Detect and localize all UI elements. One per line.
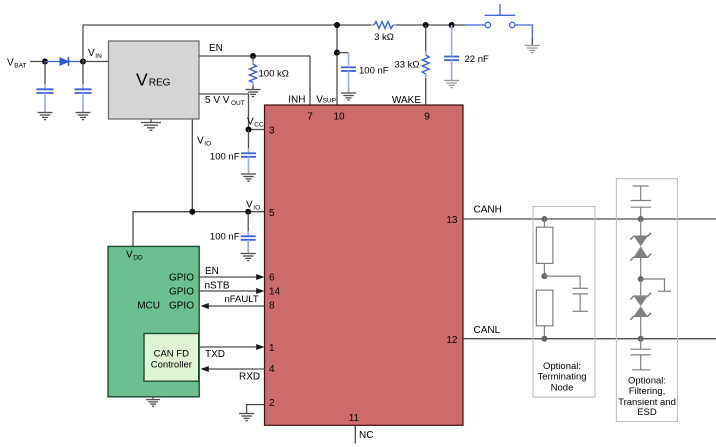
svg-text:8: 8 xyxy=(269,301,275,312)
svg-text:3 kΩ: 3 kΩ xyxy=(374,32,394,43)
svg-text:GPIO: GPIO xyxy=(169,301,194,312)
svg-text:SUP: SUP xyxy=(323,98,336,105)
svg-text:EN: EN xyxy=(209,43,223,54)
svg-text:IN: IN xyxy=(95,53,102,60)
svg-text:V: V xyxy=(7,58,14,69)
svg-text:CC: CC xyxy=(254,122,264,129)
svg-text:nSTB: nSTB xyxy=(205,281,230,292)
svg-text:V: V xyxy=(126,250,133,261)
svg-text:100 nF: 100 nF xyxy=(359,66,389,77)
svg-text:100 kΩ: 100 kΩ xyxy=(259,69,289,80)
svg-text:14: 14 xyxy=(269,287,281,298)
svg-text:5 V V: 5 V V xyxy=(205,95,230,106)
svg-text:IO: IO xyxy=(253,205,260,212)
svg-text:TXD: TXD xyxy=(205,349,225,360)
svg-text:1: 1 xyxy=(269,343,275,354)
svg-text:Filtering,: Filtering, xyxy=(629,386,665,397)
svg-text:CANL: CANL xyxy=(474,325,501,336)
svg-text:BAT: BAT xyxy=(14,63,26,70)
svg-text:Optional:: Optional: xyxy=(543,361,581,372)
svg-text:9: 9 xyxy=(424,112,430,123)
svg-text:NC: NC xyxy=(359,430,373,441)
svg-text:CAN FD: CAN FD xyxy=(154,349,190,360)
svg-text:4: 4 xyxy=(269,364,275,375)
svg-text:RXD: RXD xyxy=(239,372,260,383)
svg-text:Node: Node xyxy=(551,382,574,393)
svg-text:10: 10 xyxy=(333,112,345,123)
svg-text:11: 11 xyxy=(349,413,360,424)
svg-text:12: 12 xyxy=(446,335,458,346)
svg-text:Controller: Controller xyxy=(151,359,192,370)
svg-text:REG: REG xyxy=(149,78,171,89)
svg-text:3: 3 xyxy=(269,126,275,137)
svg-text:V: V xyxy=(88,48,95,59)
svg-text:7: 7 xyxy=(307,112,313,123)
svg-text:ESD: ESD xyxy=(637,407,657,418)
svg-text:5: 5 xyxy=(269,208,275,219)
svg-text:nFAULT: nFAULT xyxy=(225,294,259,305)
svg-text:EN: EN xyxy=(205,266,219,277)
svg-text:V: V xyxy=(247,117,254,128)
svg-text:GPIO: GPIO xyxy=(169,273,194,284)
svg-text:CANH: CANH xyxy=(474,205,502,216)
svg-text:100 nF: 100 nF xyxy=(210,232,240,243)
svg-text:DD: DD xyxy=(133,255,143,262)
svg-text:2: 2 xyxy=(269,398,275,409)
svg-text:MCU: MCU xyxy=(137,301,160,312)
svg-text:100 nF: 100 nF xyxy=(210,152,240,163)
svg-text:IO: IO xyxy=(204,141,211,148)
svg-text:V: V xyxy=(197,136,204,147)
svg-text:GPIO: GPIO xyxy=(169,287,194,298)
svg-text:Terminating: Terminating xyxy=(537,372,586,383)
svg-text:OUT: OUT xyxy=(231,100,245,107)
svg-text:6: 6 xyxy=(269,273,275,284)
svg-text:Optional:: Optional: xyxy=(628,375,666,386)
svg-text:V: V xyxy=(136,70,148,90)
svg-text:13: 13 xyxy=(446,215,458,226)
svg-text:22 nF: 22 nF xyxy=(465,54,489,65)
svg-text:WAKE: WAKE xyxy=(392,95,421,106)
svg-text:V: V xyxy=(246,200,253,211)
svg-text:33 kΩ: 33 kΩ xyxy=(394,60,419,71)
svg-text:INH: INH xyxy=(288,95,305,106)
